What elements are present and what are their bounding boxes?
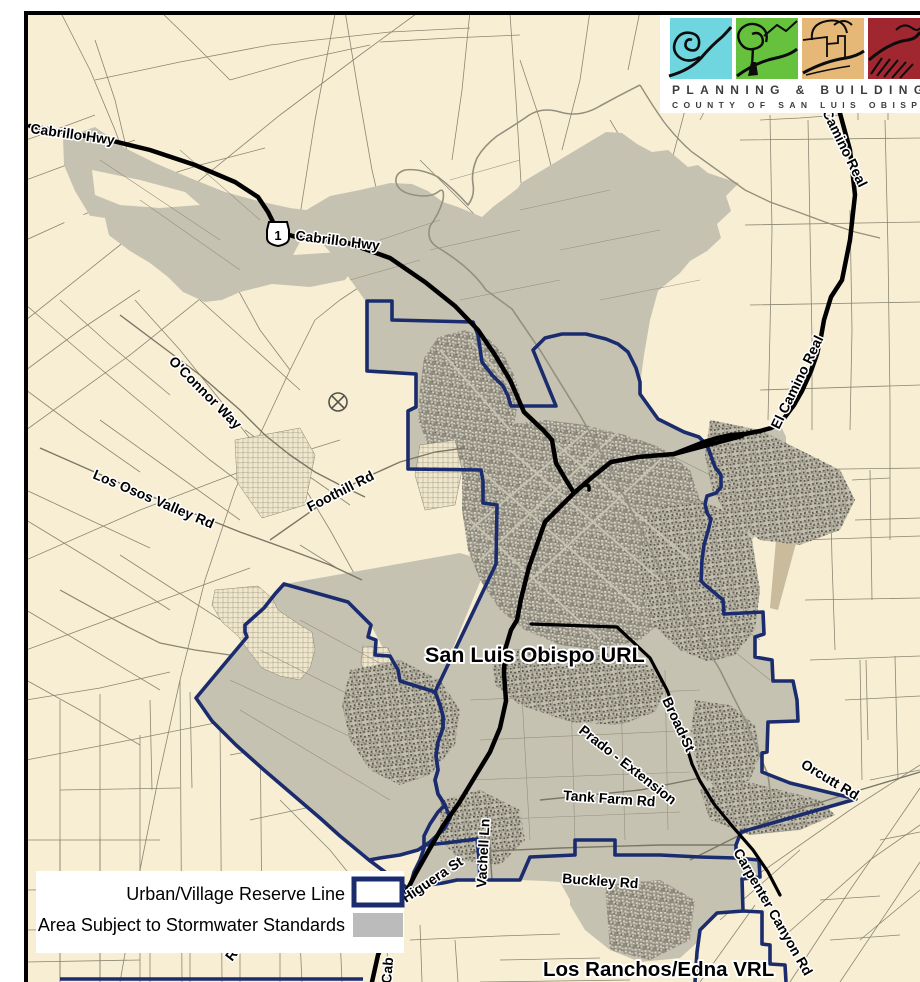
svg-text:San Luis Obispo URL: San Luis Obispo URL bbox=[425, 643, 645, 667]
svg-text:COUNTY OF SAN LUIS OBISPO: COUNTY OF SAN LUIS OBISPO bbox=[672, 100, 920, 110]
svg-text:Area Subject to Stormwater Sta: Area Subject to Stormwater Standards bbox=[38, 915, 345, 935]
svg-text:Urban/Village Reserve Line: Urban/Village Reserve Line bbox=[126, 884, 345, 904]
svg-text:Cab: Cab bbox=[378, 957, 396, 982]
svg-text:PLANNING & BUILDING: PLANNING & BUILDING bbox=[672, 83, 920, 97]
svg-text:Los Ranchos/Edna VRL: Los Ranchos/Edna VRL bbox=[543, 958, 774, 981]
svg-text:1: 1 bbox=[274, 228, 281, 243]
